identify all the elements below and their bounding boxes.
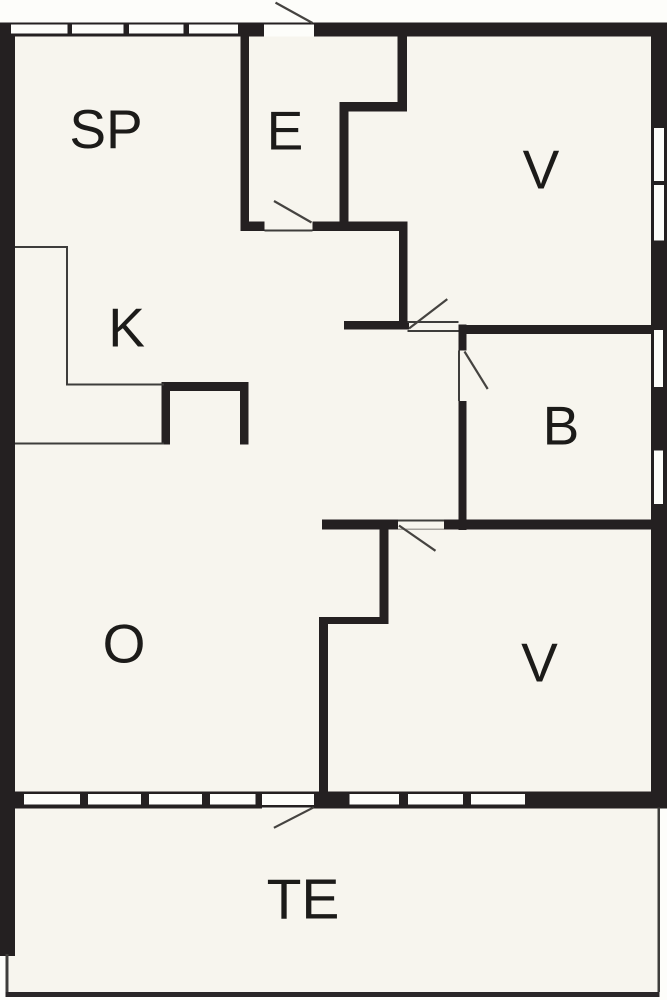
svg-text:K: K (108, 296, 145, 358)
svg-text:B: B (543, 395, 580, 457)
svg-text:TE: TE (267, 867, 340, 931)
svg-text:V: V (521, 632, 558, 694)
svg-text:SP: SP (69, 98, 142, 160)
svg-text:O: O (103, 613, 146, 675)
svg-text:V: V (523, 138, 560, 200)
svg-text:E: E (267, 99, 304, 161)
